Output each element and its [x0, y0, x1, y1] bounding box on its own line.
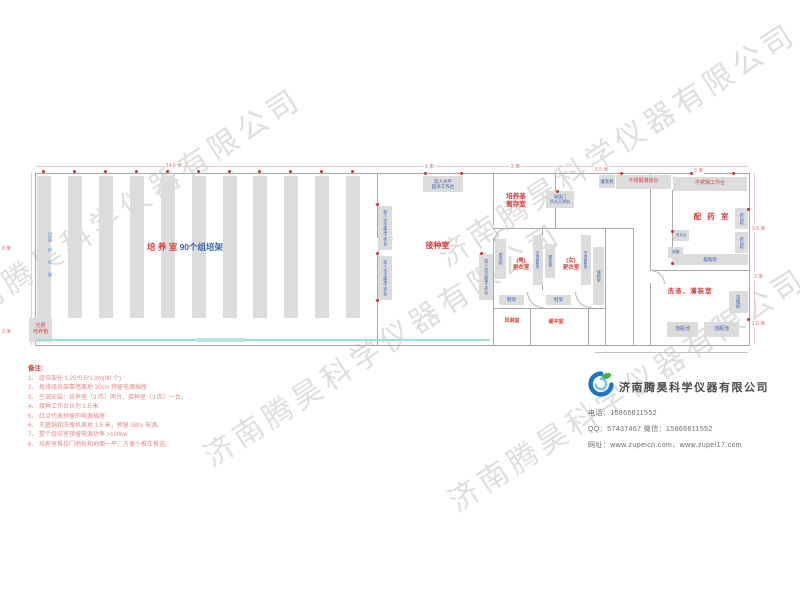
dim-culture-width: 14.5 米 [165, 162, 183, 169]
power-outlet-dot [480, 252, 483, 255]
wall [493, 173, 494, 225]
power-outlet-dot [376, 203, 379, 206]
wechat-number: 15866611552 [666, 426, 713, 433]
phone-label: 电话： [588, 410, 610, 417]
power-outlet-dot [732, 172, 735, 175]
dim-medium-width: 2 米 [510, 163, 521, 170]
dim-prep-width: 3 米 [693, 167, 704, 174]
power-outlet-dot [556, 190, 559, 193]
power-outlet-dot [376, 299, 379, 302]
wardrobe-female: 更衣柜 [545, 244, 555, 278]
note-item-1: 1、 组培架长 1.25*0.5*1.8m(90 个) [28, 375, 187, 384]
female-dressing-room-label: (女)更衣室 [556, 258, 586, 272]
male-line2: 更衣室 [513, 265, 530, 271]
dim-left-bottom: 3 米 [1, 328, 12, 335]
air-shower-label: 风淋室 [494, 318, 530, 325]
culture-rack [346, 176, 360, 318]
culture-room-racks-count: 90个组培架 [180, 242, 223, 252]
company-name: 济南腾昊科学仪器有限公司 [619, 379, 769, 395]
buffer-room-label: 缓冲室 [535, 319, 577, 326]
floor-plan-canvas: 济南腾昊科学仪器有限公司 济南腾昊科学仪器有限公司 济南腾昊科学仪器有限公司 济… [0, 0, 800, 600]
power-outlet-dot [166, 170, 169, 173]
soak-pool-1: 泡瓶池 [667, 322, 698, 337]
power-outlet-dot [376, 252, 379, 255]
storage-shelf: 储物架 [593, 247, 604, 305]
note-item-7: 7、 整个组培室预留电源功率 >100kw [28, 431, 187, 440]
laminar-bench-top: 双人水平超净工作台 [423, 176, 463, 192]
wechat-label: 微信： [641, 426, 666, 433]
dim-left-height: 8 米 [1, 245, 12, 252]
medium-room-label: 培养基暂存室 [496, 193, 536, 210]
note-item-4: 4、 接种工作台长为 1.5 米 [28, 403, 187, 412]
dim-wash-height: 2 米 [753, 273, 764, 280]
qq-label: QQ： [588, 426, 607, 433]
shoe-rack-1: 鞋架 [499, 295, 524, 305]
door-arc [651, 270, 665, 284]
dim-pool-height: 1.5 米 [751, 320, 766, 327]
steel-filling-table: 不锈钢灌装台 [616, 175, 671, 189]
wall [493, 238, 494, 345]
culture-room-label: 培 养 室 90个组培架 [130, 242, 240, 253]
note-item-6: 6、 灭菌锅和洗瓶机离地 1.5 米，预留 380v 电源。 [28, 422, 187, 431]
wall [650, 270, 750, 271]
medium-line1: 培养基 [506, 193, 526, 200]
dim-fill-width: 5.5 米 [594, 166, 609, 173]
shoe-rack-2: 鞋架 [546, 295, 571, 305]
wall [605, 228, 606, 345]
laminar-bench-left-2: 双人水平超净工作台 [378, 256, 392, 300]
wardrobe-male: 更衣柜 [495, 239, 506, 279]
power-outlet-dot [460, 172, 463, 175]
wall [595, 352, 748, 353]
wall [35, 173, 750, 174]
power-outlet-dot [351, 170, 354, 173]
culture-rack [284, 176, 298, 318]
phone-number: 15866611552 [610, 410, 657, 417]
laminar-bench-right: 双人水平超净工作台 [479, 254, 493, 300]
wall [588, 308, 589, 345]
dimension-line-top [36, 166, 748, 167]
male-dressing-room-label: (男)更衣室 [506, 258, 536, 272]
note-item-2: 2、 每排组培架靠墙离地 30cm 预留电源插座 [28, 384, 187, 393]
power-outlet-dot [424, 172, 427, 175]
company-block: 济南腾昊科学仪器有限公司 电话：15866611552 QQ：57437467 … [588, 371, 769, 450]
power-outlet-dot [135, 170, 138, 173]
power-outlet-dot [104, 170, 107, 173]
power-outlet-dot [320, 170, 323, 173]
website-label: 网址： [588, 442, 610, 449]
male-line1: (男) [516, 258, 525, 264]
power-outlet-dot [747, 208, 750, 211]
note-item-5: 5、 红点代表预留的电源插座 [28, 413, 187, 422]
power-outlet-dot [73, 170, 76, 173]
filling-machine: 灌装机 [599, 175, 615, 188]
glass-door-note: 玻璃门吊式天滑轨 [546, 191, 574, 208]
qq-number: 57437467 [607, 426, 641, 433]
female-line2: 更衣室 [563, 265, 580, 271]
dim-inoculation-width: 5 米 [424, 163, 435, 170]
soak-pool-2: 泡瓶池 [704, 322, 739, 337]
note-item-3: 3、 空调安装：培养室（3 匹）两台，接种室（3 匹）一台。 [28, 394, 187, 403]
power-outlet-dot [258, 170, 261, 173]
notes-section: 备注: 1、 组培架长 1.25*0.5*1.8m(90 个) 2、 每排组培架… [28, 362, 187, 450]
power-outlet-dot [620, 172, 623, 175]
balance-table: 天平台 [673, 230, 689, 241]
culture-room-name: 培 养 室 [147, 242, 180, 252]
medicine-cabinet-2: 药品柜 [735, 232, 748, 253]
note-item-8: 8、 培养室推拉门地轨和地面一平，方便小推车推送。 [28, 441, 187, 450]
dim-prep-height: 3.5 米 [751, 225, 766, 232]
power-outlet-dot [690, 172, 693, 175]
sliding-door [197, 338, 245, 342]
culture-rack [99, 176, 113, 318]
sliding-door-track [36, 339, 490, 341]
bottle-placing-rack: 摆瓶架 [672, 254, 748, 265]
power-outlet-dot [197, 170, 200, 173]
door-line2: 吊式天滑轨 [550, 200, 570, 205]
medium-line2: 暂存室 [506, 201, 526, 208]
prep-room-label: 配 药 室 [682, 212, 742, 222]
laminar-bench-left-1: 双人水平超净工作台 [378, 206, 392, 250]
door-arc [527, 292, 543, 308]
wall [493, 228, 633, 229]
culture-rack [253, 176, 267, 318]
aisle-label: 过道 0.6 米 [46, 225, 53, 283]
incubator-line2: 培养箱 [33, 330, 48, 336]
female-line1: (女) [566, 258, 575, 264]
power-outlet-dot [228, 170, 231, 173]
wall [530, 308, 531, 345]
washing-room-label: 洗涤、灌装室 [645, 288, 735, 296]
wall [35, 345, 750, 346]
company-logo-icon [588, 371, 614, 402]
power-outlet-dot [747, 318, 750, 321]
steel-work-table: 不锈钢工作台 [673, 177, 747, 191]
door-arc [575, 292, 591, 308]
inoculation-room-label: 接种室 [410, 241, 465, 251]
notes-title: 备注: [28, 362, 187, 372]
culture-rack [68, 176, 82, 318]
wall [633, 228, 634, 345]
power-outlet-dot [671, 262, 674, 265]
culture-rack [315, 176, 329, 318]
power-outlet-dot [42, 170, 45, 173]
website-urls: www.zupeicn.com、www.zupei17.com [610, 442, 742, 449]
power-outlet-dot [671, 230, 674, 233]
power-outlet-dot [289, 170, 292, 173]
bench-line2: 超净工作台 [432, 184, 455, 189]
